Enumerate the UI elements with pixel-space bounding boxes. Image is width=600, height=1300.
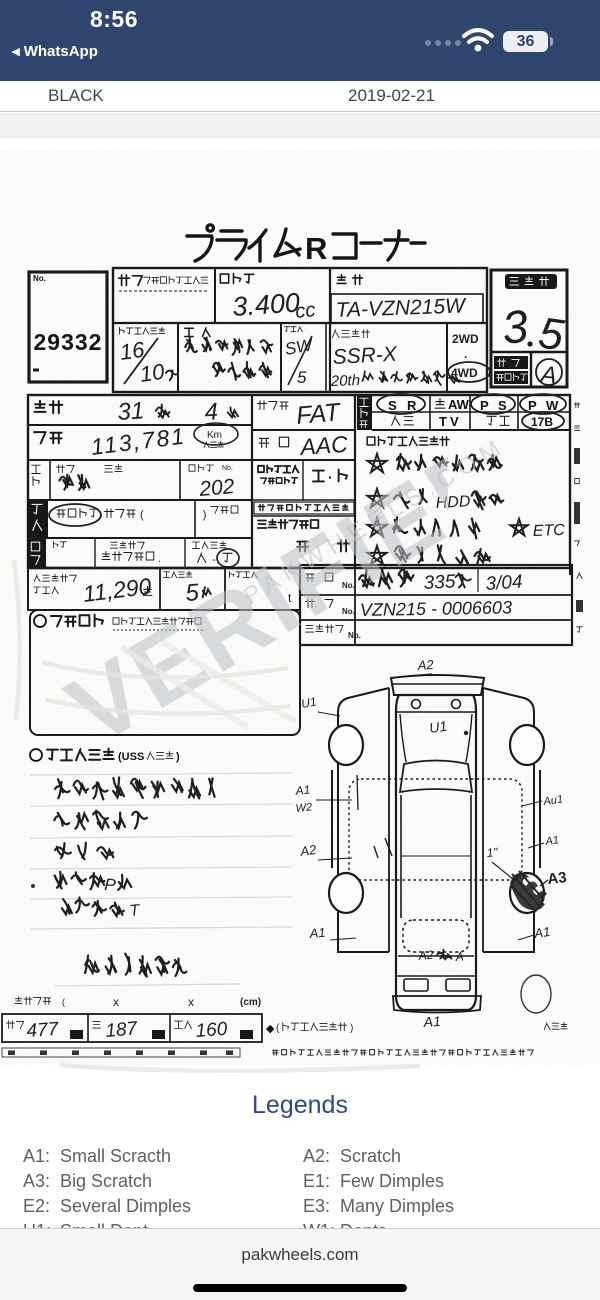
svg-text:.: . bbox=[464, 347, 467, 361]
svg-text:cc: cc bbox=[294, 299, 316, 323]
svg-text:10: 10 bbox=[138, 359, 166, 387]
svg-text:R: R bbox=[407, 398, 417, 413]
svg-text:U1: U1 bbox=[300, 695, 318, 711]
svg-text:AAC: AAC bbox=[298, 431, 349, 460]
svg-text:3.400: 3.400 bbox=[231, 287, 301, 322]
svg-text:A1: A1 bbox=[422, 1013, 441, 1030]
svg-text:FAT: FAT bbox=[295, 398, 343, 430]
svg-text:R: R bbox=[305, 231, 327, 266]
svg-text:No.: No. bbox=[348, 631, 361, 640]
svg-text:TA-VZN215W: TA-VZN215W bbox=[335, 294, 467, 322]
svg-text:U1: U1 bbox=[428, 718, 448, 736]
svg-text:29332: 29332 bbox=[34, 329, 103, 355]
svg-text:S: S bbox=[498, 398, 507, 413]
svg-text:·: · bbox=[328, 469, 333, 485]
svg-text:): ) bbox=[176, 751, 180, 763]
svg-text:◆: ◆ bbox=[266, 1023, 275, 1035]
svg-text:ETC: ETC bbox=[533, 522, 566, 540]
svg-text:-: - bbox=[212, 554, 216, 566]
svg-text:31: 31 bbox=[117, 397, 146, 426]
svg-text:AW: AW bbox=[448, 397, 470, 412]
svg-text:A2: A2 bbox=[417, 948, 434, 963]
svg-text:4: 4 bbox=[204, 398, 219, 426]
svg-text:SSR-X: SSR-X bbox=[332, 343, 398, 369]
svg-text:A2: A2 bbox=[298, 842, 318, 859]
svg-text:x: x bbox=[113, 995, 119, 1009]
svg-text:No.: No. bbox=[33, 274, 46, 283]
svg-text:2WD: 2WD bbox=[452, 332, 479, 346]
svg-text:.: . bbox=[158, 553, 161, 565]
svg-text:A2: A2 bbox=[416, 657, 435, 673]
svg-text:): ) bbox=[350, 1023, 353, 1034]
svg-text:TV: TV bbox=[439, 414, 462, 429]
svg-text:( ): ( ) bbox=[140, 509, 234, 521]
svg-text:x: x bbox=[188, 995, 194, 1009]
svg-text:335: 335 bbox=[423, 571, 456, 594]
svg-text:1": 1" bbox=[486, 845, 499, 860]
svg-text:(cm): (cm) bbox=[240, 997, 261, 1008]
svg-text:202: 202 bbox=[197, 475, 235, 501]
svg-text:P: P bbox=[480, 398, 489, 413]
svg-text:17B: 17B bbox=[531, 415, 553, 429]
svg-text:A1: A1 bbox=[532, 924, 551, 941]
svg-text:W2: W2 bbox=[295, 801, 313, 815]
svg-text:160: 160 bbox=[195, 1019, 229, 1042]
svg-text:A: A bbox=[454, 949, 464, 964]
svg-text:A1: A1 bbox=[294, 783, 311, 799]
svg-text:P: P bbox=[528, 398, 537, 413]
svg-text:A1: A1 bbox=[544, 834, 560, 848]
svg-text:477: 477 bbox=[26, 1019, 61, 1042]
svg-text:3/04: 3/04 bbox=[485, 571, 523, 595]
svg-text:S: S bbox=[388, 398, 397, 413]
svg-text:5: 5 bbox=[297, 368, 307, 387]
svg-text:187: 187 bbox=[105, 1018, 140, 1042]
svg-text:A1: A1 bbox=[308, 925, 326, 941]
svg-text:No.: No. bbox=[222, 465, 233, 472]
svg-text:(: ( bbox=[62, 997, 65, 1007]
svg-text:20th: 20th bbox=[330, 372, 361, 390]
svg-text:P: P bbox=[104, 875, 117, 895]
svg-text:Km: Km bbox=[207, 430, 222, 441]
svg-text:A3: A3 bbox=[547, 869, 568, 888]
svg-text:4WD: 4WD bbox=[451, 366, 478, 380]
svg-text:W: W bbox=[546, 398, 559, 413]
